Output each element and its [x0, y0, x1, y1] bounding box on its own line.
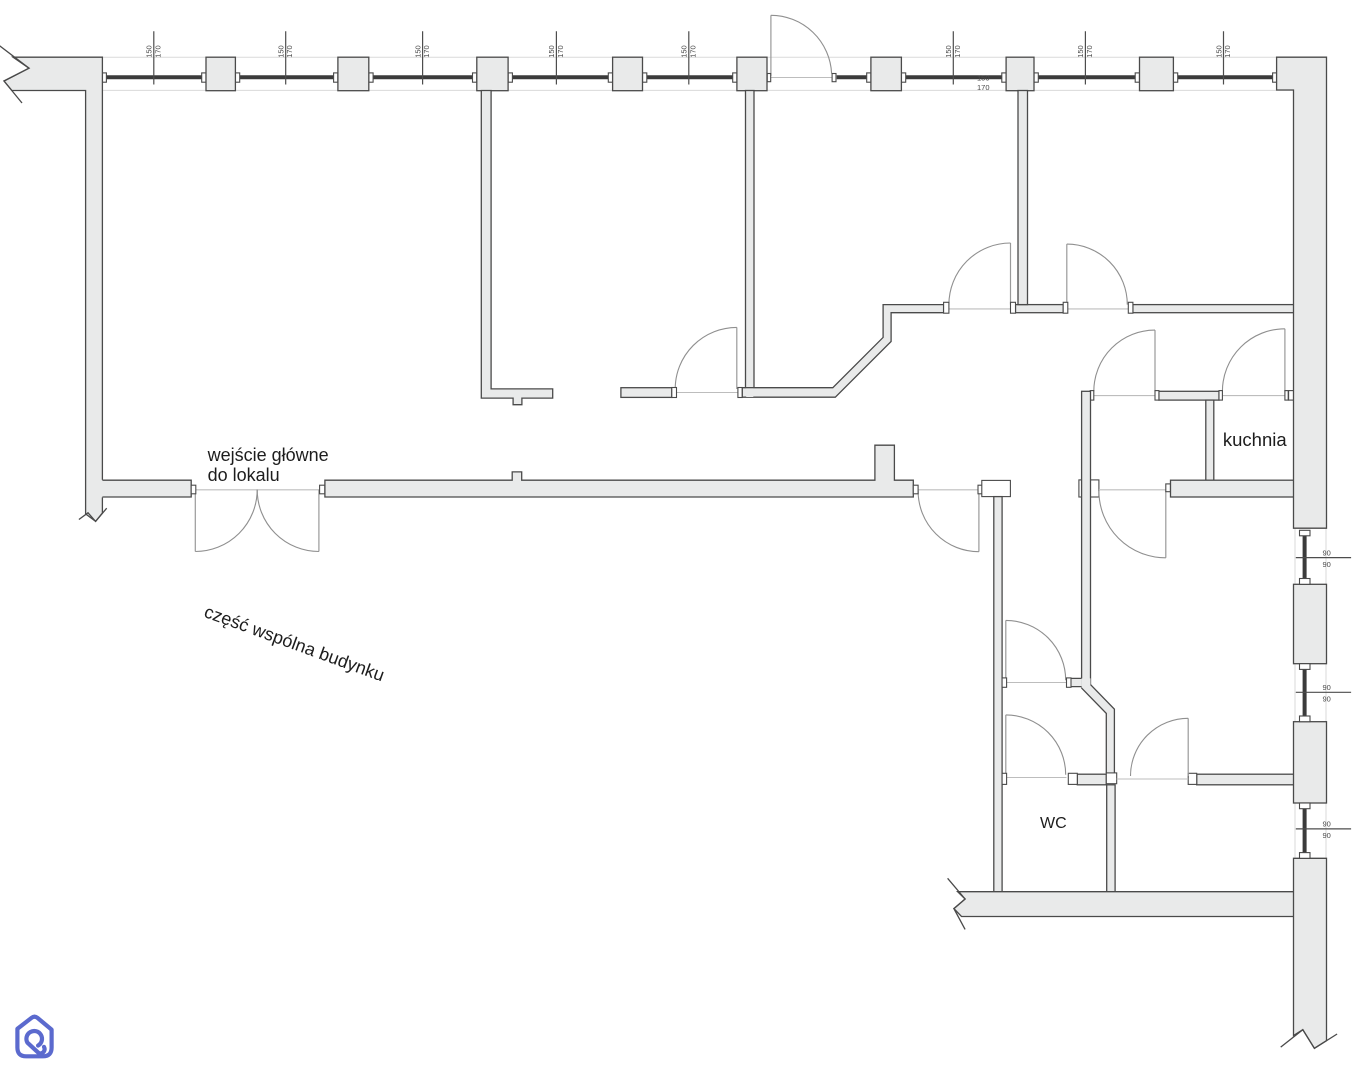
svg-text:150: 150 — [944, 45, 953, 58]
svg-text:90: 90 — [1323, 548, 1331, 557]
svg-text:170: 170 — [285, 45, 294, 58]
svg-text:90: 90 — [1323, 695, 1331, 704]
svg-text:170: 170 — [556, 45, 565, 58]
svg-text:170: 170 — [422, 45, 431, 58]
svg-text:150: 150 — [680, 45, 689, 58]
svg-text:170: 170 — [1223, 45, 1232, 58]
svg-text:150: 150 — [977, 74, 990, 83]
svg-text:150: 150 — [1076, 45, 1085, 58]
svg-text:170: 170 — [688, 45, 697, 58]
svg-text:90: 90 — [1323, 560, 1331, 569]
svg-text:170: 170 — [1085, 45, 1094, 58]
svg-text:150: 150 — [547, 45, 556, 58]
svg-text:150: 150 — [145, 45, 154, 58]
svg-text:170: 170 — [977, 83, 990, 92]
svg-text:90: 90 — [1323, 683, 1331, 692]
svg-text:150: 150 — [277, 45, 286, 58]
svg-text:90: 90 — [1323, 820, 1331, 829]
svg-text:do lokalu: do lokalu — [208, 465, 280, 485]
svg-text:150: 150 — [1214, 45, 1223, 58]
svg-text:90: 90 — [1323, 831, 1331, 840]
svg-text:kuchnia: kuchnia — [1223, 429, 1287, 450]
svg-text:WC: WC — [1040, 815, 1067, 832]
svg-text:170: 170 — [153, 45, 162, 58]
svg-text:150: 150 — [413, 45, 422, 58]
svg-text:wejście główne: wejście główne — [207, 445, 329, 465]
svg-text:170: 170 — [953, 45, 962, 58]
